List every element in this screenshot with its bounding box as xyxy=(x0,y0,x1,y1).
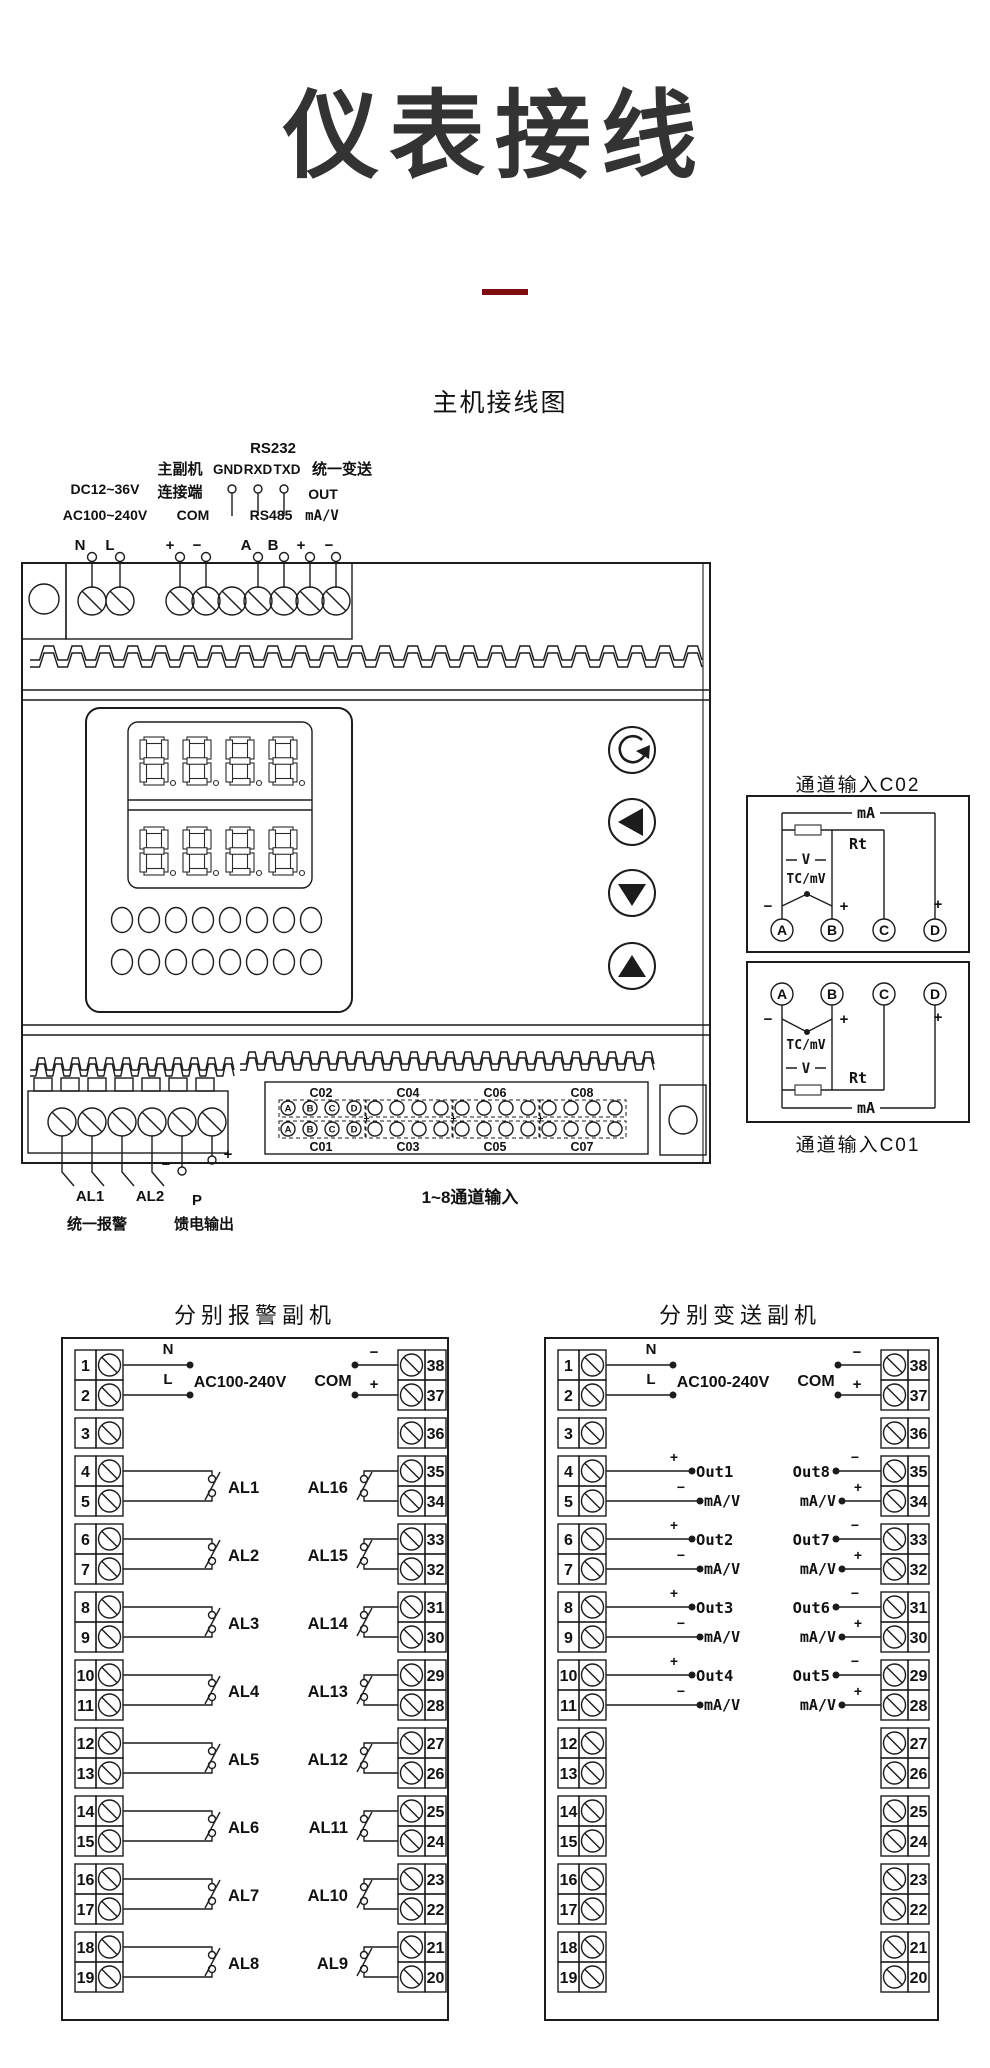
terminal-number: 13 xyxy=(560,1766,578,1783)
strip-tooth xyxy=(34,1078,52,1091)
channel-c01-title: 通道输入C01 xyxy=(796,1134,921,1156)
subunit-screw-terminal xyxy=(401,1626,423,1648)
terminal-number: 24 xyxy=(427,1834,445,1851)
terminal-number: 27 xyxy=(427,1736,445,1753)
relay-label: AL2 xyxy=(228,1547,259,1565)
indicator-lamp xyxy=(247,950,268,975)
rs232-label: RS232 xyxy=(250,440,296,457)
channel-pin xyxy=(542,1101,556,1115)
front-buttons xyxy=(609,727,655,989)
terminal-number: 11 xyxy=(77,1698,94,1715)
subunit-screw-terminal xyxy=(582,1694,604,1716)
decimal-point xyxy=(214,871,219,876)
subunit-screw-terminal xyxy=(582,1762,604,1784)
channel-box-pin-letter: A xyxy=(777,986,787,1002)
indicator-lamp xyxy=(301,908,322,933)
subunit-screw-terminal xyxy=(582,1664,604,1686)
output-sign: − xyxy=(851,1585,859,1601)
subunit-screw-terminal xyxy=(99,1558,121,1580)
subunit-screw-terminal xyxy=(884,1528,906,1550)
indicator-lamp xyxy=(139,950,160,975)
wire-end-node xyxy=(254,553,263,562)
channel-input-c02: 通道输入C02 mA Rt V TC/mV − + + ABCD xyxy=(747,774,969,952)
wire-dot xyxy=(187,1392,194,1399)
alarm-n-label: N xyxy=(163,1341,174,1358)
terminal-number: 25 xyxy=(427,1804,445,1821)
c02-tcmv-label: TC/mV xyxy=(786,872,825,887)
terminal-number: 38 xyxy=(910,1358,928,1375)
channel-pin xyxy=(608,1101,622,1115)
terminal-number: 4 xyxy=(81,1464,90,1481)
terminal-number: 21 xyxy=(427,1940,445,1957)
output-sign: − xyxy=(677,1615,685,1631)
subunit-screw-terminal xyxy=(582,1460,604,1482)
relay-contact: AL13 xyxy=(308,1675,398,1705)
terminal-number: 33 xyxy=(427,1532,445,1549)
terminal-number: 5 xyxy=(564,1494,573,1511)
relay-label: AL4 xyxy=(228,1683,260,1701)
plus-separator: + xyxy=(451,1114,457,1125)
wire-dot xyxy=(670,1392,677,1399)
terminal-number: 31 xyxy=(910,1600,928,1617)
relay-contact: AL16 xyxy=(308,1471,398,1501)
channel-label-top: C06 xyxy=(484,1086,507,1100)
channel-pin-letter: C xyxy=(329,1125,336,1136)
subunit-screw-terminal xyxy=(884,1830,906,1852)
subunit-screw-terminal xyxy=(99,1732,121,1754)
output-name: Out2 xyxy=(696,1531,733,1549)
terminal-number: 30 xyxy=(910,1630,928,1647)
subunit-screw-terminal xyxy=(582,1596,604,1618)
subunit-screw-terminal xyxy=(884,1898,906,1920)
subunit-screw-terminal xyxy=(401,1384,423,1406)
channel-pin-letter: B xyxy=(307,1125,314,1136)
subunit-screw-terminal xyxy=(884,1490,906,1512)
indicator-lamp xyxy=(247,908,268,933)
terminal-number: 26 xyxy=(910,1766,928,1783)
main-top-labels: RS232 主副机 GND RXD TXD 统一变送 连接端 OUT DC12~… xyxy=(63,440,373,554)
alarm-com-minus: − xyxy=(370,1344,379,1361)
transmit-ac-label: AC100-240V xyxy=(677,1374,770,1391)
wire-dot xyxy=(352,1362,359,1369)
terminal-number: 1 xyxy=(81,1358,90,1375)
al2-wire xyxy=(122,1136,134,1186)
subunit-screw-terminal xyxy=(582,1528,604,1550)
subunit-screw-terminal xyxy=(582,1936,604,1958)
channel-pin xyxy=(521,1122,535,1136)
c01-ma-label: mA xyxy=(857,1099,875,1117)
wire-dot xyxy=(352,1392,359,1399)
channel-pin xyxy=(564,1101,578,1115)
relay-label: AL14 xyxy=(308,1615,349,1633)
terminal-number: 17 xyxy=(560,1902,578,1919)
channel-box-pin-letter: C xyxy=(879,922,889,938)
terminal-number: 22 xyxy=(910,1902,928,1919)
strip-tooth xyxy=(115,1078,133,1091)
terminal-number: 30 xyxy=(427,1630,445,1647)
output-unit: mA/V xyxy=(800,1492,836,1510)
indicator-lamp xyxy=(220,908,241,933)
transmit-subunit-box xyxy=(545,1338,938,2020)
indicator-lamp xyxy=(139,908,160,933)
output-sign: + xyxy=(670,1585,678,1601)
terminal-number: 3 xyxy=(81,1426,90,1443)
plus-separator: + xyxy=(364,1114,370,1125)
terminal-number: 20 xyxy=(427,1970,445,1987)
com-label: COM xyxy=(177,507,210,523)
subunit-screw-terminal xyxy=(99,1384,121,1406)
terminal-number: 23 xyxy=(427,1872,445,1889)
relay-contact: AL12 xyxy=(308,1743,398,1773)
terminal-number: 28 xyxy=(910,1698,928,1715)
channel-pin xyxy=(586,1101,600,1115)
terminal-number: 15 xyxy=(77,1834,95,1851)
subunit-screw-terminal xyxy=(401,1732,423,1754)
strip-tooth xyxy=(196,1078,214,1091)
subunit-screw-terminal xyxy=(582,1354,604,1376)
top-screw-terminal xyxy=(106,587,134,615)
indicator-lamp xyxy=(220,950,241,975)
output-name: Out4 xyxy=(696,1667,733,1685)
subunit-screw-terminal xyxy=(582,1868,604,1890)
seven-segment-digit xyxy=(269,827,305,876)
subunit-screw-terminal xyxy=(884,1354,906,1376)
relay-contact: AL10 xyxy=(308,1879,398,1909)
p-plus-label: + xyxy=(224,1146,233,1163)
channel-box-pin-letter: A xyxy=(777,922,787,938)
master-slave-label-1: 主副机 xyxy=(157,460,202,478)
c02-v-label: V xyxy=(802,852,811,868)
channel-pin-letter: D xyxy=(351,1125,358,1136)
output-sign: + xyxy=(670,1653,678,1669)
subunit-screw-terminal xyxy=(99,1830,121,1852)
channel-pin xyxy=(390,1122,404,1136)
subunit-screw-terminal xyxy=(401,1664,423,1686)
subunit-screw-terminal xyxy=(401,1528,423,1550)
channel-pin xyxy=(390,1101,404,1115)
channel-box-pin-letter: C xyxy=(879,986,889,1002)
wire-end-node xyxy=(306,553,315,562)
channel-pin xyxy=(368,1101,382,1115)
output-unit: mA/V xyxy=(800,1628,836,1646)
terminal-number: 38 xyxy=(427,1358,445,1375)
c02-resistor xyxy=(795,825,821,835)
top-terminal-screws xyxy=(78,485,350,615)
relay-label: AL1 xyxy=(228,1479,259,1497)
subunit-screw-terminal xyxy=(99,1664,121,1686)
indicator-lamps xyxy=(112,908,322,975)
relay-label: AL9 xyxy=(317,1955,348,1973)
terminal-number: 13 xyxy=(77,1766,95,1783)
term-out-plus-label: + xyxy=(297,537,306,554)
subunit-screw-terminal xyxy=(884,1800,906,1822)
indicator-lamp xyxy=(274,908,295,933)
terminal-number: 16 xyxy=(560,1872,578,1889)
indicator-lamp xyxy=(193,908,214,933)
subunit-screw-terminal xyxy=(401,1966,423,1988)
indicator-lamp xyxy=(166,950,187,975)
terminal-number: 14 xyxy=(560,1804,578,1821)
channel-pin-letter: B xyxy=(307,1104,314,1115)
gnd-label: GND xyxy=(213,462,243,477)
main-bottom-labels: AL1 AL2 P − + 统一报警 馈电输出 1~8通道输入 xyxy=(62,1136,518,1233)
top-screw-terminal xyxy=(322,587,350,615)
subunit-screw-terminal xyxy=(99,1528,121,1550)
seven-segment-digit xyxy=(226,827,262,876)
master-slave-label-2: 连接端 xyxy=(157,483,202,501)
analog-output: +Out2−mA/V−Out7+mA/V xyxy=(606,1517,881,1578)
subunit-screw-terminal xyxy=(884,1460,906,1482)
subunit-screw-terminal xyxy=(99,1596,121,1618)
subunit-screw-terminal xyxy=(582,1384,604,1406)
subunit-screw-terminal xyxy=(401,1762,423,1784)
channel-label-bottom: C03 xyxy=(397,1140,420,1154)
terminal-number: 20 xyxy=(910,1970,928,1987)
strip-tooth xyxy=(142,1078,160,1091)
subunit-screw-terminal xyxy=(99,1460,121,1482)
channel-range-label: 1~8通道输入 xyxy=(422,1187,519,1207)
subunit-screw-terminal xyxy=(582,1800,604,1822)
relay-label: AL11 xyxy=(309,1819,348,1837)
terminal-number: 18 xyxy=(77,1940,95,1957)
output-name: Out6 xyxy=(793,1599,830,1617)
terminal-number: 1 xyxy=(564,1358,573,1375)
main-unit-body: C02C01AABBCCDDC04C03C06C05C08C07+++ xyxy=(22,485,710,1163)
rs232-stub-node xyxy=(280,485,288,493)
relay-contact: AL2 xyxy=(123,1539,259,1569)
p-minus-label: − xyxy=(162,1156,171,1173)
subunit-screw-terminal xyxy=(99,1354,121,1376)
terminal-number: 24 xyxy=(910,1834,928,1851)
rs485-label: RS485 xyxy=(250,507,293,523)
wire-end-node xyxy=(88,553,97,562)
subunit-screw-terminal xyxy=(401,1800,423,1822)
channel-pin xyxy=(477,1122,491,1136)
c01-minus-label: − xyxy=(764,1011,773,1028)
output-unit: mA/V xyxy=(704,1560,740,1578)
c02-pin-circles: ABCD xyxy=(771,919,946,941)
terminal-number: 19 xyxy=(560,1970,578,1987)
wire-end-node xyxy=(280,553,289,562)
channel-box-pin-letter: D xyxy=(930,986,940,1002)
wire-end-node xyxy=(332,553,341,562)
terminal-number: 32 xyxy=(910,1562,928,1579)
output-sign: − xyxy=(677,1479,685,1495)
output-name: Out1 xyxy=(696,1463,733,1481)
relay-label: AL6 xyxy=(228,1819,259,1837)
terminal-number: 23 xyxy=(910,1872,928,1889)
channel-pin-letter: A xyxy=(285,1104,292,1115)
alarm-subunit-title: 分别报警副机 xyxy=(174,1303,336,1328)
channel-pin xyxy=(542,1122,556,1136)
heatsink-zigzag-top xyxy=(30,646,702,667)
top-screw-terminal xyxy=(244,587,272,615)
c02-minus-label: − xyxy=(764,898,773,915)
output-unit: mA/V xyxy=(800,1560,836,1578)
dc-range-label: DC12~36V xyxy=(71,481,141,497)
channel-box-pin-letter: D xyxy=(930,922,940,938)
c01-pin-circles: ABCD xyxy=(771,983,946,1005)
top-screw-terminal xyxy=(192,587,220,615)
terminal-number: 14 xyxy=(77,1804,95,1821)
channel-pin-letter: D xyxy=(351,1104,358,1115)
alarm-com-label: COM xyxy=(314,1373,351,1390)
al1-label: AL1 xyxy=(76,1188,104,1205)
channel-pin xyxy=(608,1122,622,1136)
p-minus-node xyxy=(178,1167,186,1175)
alarm-subunit-diagram: 分别报警副机 123456789101112131415161718193837… xyxy=(62,1303,448,2020)
subunit-screw-terminal xyxy=(401,1898,423,1920)
terminal-number: 29 xyxy=(427,1668,445,1685)
subunit-screw-terminal xyxy=(884,1422,906,1444)
output-unit: mA/V xyxy=(800,1696,836,1714)
terminal-number: 28 xyxy=(427,1698,445,1715)
terminal-number: 36 xyxy=(427,1426,445,1443)
al1-wire xyxy=(92,1136,104,1186)
output-unit: mA/V xyxy=(704,1492,740,1510)
subunit-screw-terminal xyxy=(884,1596,906,1618)
wire-end-node xyxy=(176,553,185,562)
channel-pin xyxy=(455,1101,469,1115)
channel-label-top: C08 xyxy=(571,1086,594,1100)
output-name: Out8 xyxy=(793,1463,830,1481)
terminal-number: 7 xyxy=(81,1562,90,1579)
wire-end-node xyxy=(202,553,211,562)
c01-resistor xyxy=(795,1085,821,1095)
channel-pin xyxy=(564,1122,578,1136)
wire-dot xyxy=(670,1362,677,1369)
output-name: Out3 xyxy=(696,1599,733,1617)
subunit-screw-terminal xyxy=(884,1694,906,1716)
plus-separator: + xyxy=(538,1114,544,1125)
c01-plus-label: + xyxy=(840,1011,849,1028)
output-unit: mA/V xyxy=(704,1628,740,1646)
analog-output: +Out1−mA/V−Out8+mA/V xyxy=(606,1449,881,1510)
channel-label-top: C04 xyxy=(397,1086,420,1100)
ac-range-label: AC100~240V xyxy=(63,507,148,523)
c02-plus-label: + xyxy=(840,898,849,915)
terminal-number: 7 xyxy=(564,1562,573,1579)
channel-pin xyxy=(521,1101,535,1115)
relay-contact: AL8 xyxy=(123,1947,259,1977)
relay-contact: AL9 xyxy=(317,1947,398,1977)
subunit-screw-terminal xyxy=(401,1558,423,1580)
indicator-lamp xyxy=(112,908,133,933)
bottom-screw-terminal xyxy=(138,1108,166,1136)
decimal-point xyxy=(300,871,305,876)
terminal-number: 27 xyxy=(910,1736,928,1753)
channel-label-top: C02 xyxy=(310,1086,333,1100)
alarm-power-wires xyxy=(123,1365,190,1395)
subunit-screw-terminal xyxy=(884,1936,906,1958)
terminal-number: 12 xyxy=(560,1736,578,1753)
relay-label: AL16 xyxy=(308,1479,348,1497)
channel-input-c01: mA Rt V TC/mV − + + ABCD 通道输入C01 xyxy=(747,962,969,1156)
terminal-number: 5 xyxy=(81,1494,90,1511)
output-name: Out5 xyxy=(793,1667,830,1685)
up-arrow-icon xyxy=(618,955,646,977)
mount-hole-top xyxy=(29,584,59,614)
decimal-point xyxy=(257,781,262,786)
transmit-com-plus: + xyxy=(853,1376,862,1393)
alarm-l-label: L xyxy=(163,1371,172,1388)
terminal-number: 4 xyxy=(564,1464,573,1481)
subunit-screw-terminal xyxy=(401,1936,423,1958)
bottom-screw-terminal xyxy=(168,1108,196,1136)
channel-pin xyxy=(412,1122,426,1136)
wire-end-node xyxy=(116,553,125,562)
terminal-number: 35 xyxy=(910,1464,928,1481)
channel-pin xyxy=(412,1101,426,1115)
heatsink-zigzag-bottom-right xyxy=(240,1052,654,1070)
subunit-screw-terminal xyxy=(99,1898,121,1920)
mount-ear-bottom xyxy=(660,1085,706,1155)
subunit-screw-terminal xyxy=(582,1558,604,1580)
subunit-screw-terminal xyxy=(401,1830,423,1852)
terminal-number: 15 xyxy=(560,1834,578,1851)
subunit-screw-terminal xyxy=(884,1762,906,1784)
heatsink-zigzag-bottom-left xyxy=(30,1058,234,1076)
subunit-screw-terminal xyxy=(884,1732,906,1754)
transmit-power-wires xyxy=(606,1365,673,1395)
relay-contact: AL7 xyxy=(123,1879,259,1909)
terminal-number: 8 xyxy=(564,1600,573,1617)
indicator-lamp xyxy=(193,950,214,975)
c01-tcmv-label: TC/mV xyxy=(786,1038,825,1053)
rs232-stub-node xyxy=(228,485,236,493)
subunit-screw-terminal xyxy=(582,1626,604,1648)
terminal-number: 34 xyxy=(910,1494,928,1511)
subunit-screw-terminal xyxy=(884,1664,906,1686)
output-sign: + xyxy=(670,1449,678,1465)
channel-pin xyxy=(477,1101,491,1115)
decimal-point xyxy=(171,871,176,876)
seven-segment-digit xyxy=(183,827,219,876)
c01-dplus-label: + xyxy=(934,1009,943,1026)
channel-box-pin-letter: B xyxy=(827,986,837,1002)
terminal-number: 10 xyxy=(560,1668,578,1685)
seven-segment-digit xyxy=(269,737,305,786)
channel-label-bottom: C05 xyxy=(484,1140,507,1154)
output-sign: + xyxy=(670,1517,678,1533)
seven-segment-displays xyxy=(140,737,305,876)
rs232-stub-node xyxy=(254,485,262,493)
terminal-number: 37 xyxy=(910,1388,928,1405)
terminal-number: 18 xyxy=(560,1940,578,1957)
bottom-screw-terminal xyxy=(108,1108,136,1136)
terminal-number: 32 xyxy=(427,1562,445,1579)
subunit-screw-terminal xyxy=(99,1936,121,1958)
term-l-label: L xyxy=(105,537,114,554)
indicator-lamp xyxy=(166,908,187,933)
unified-alarm-label: 统一报警 xyxy=(67,1215,127,1233)
subunit-screw-terminal xyxy=(582,1898,604,1920)
transmit-subunit-diagram: 分别变送副机 123456789101112131415161718193837… xyxy=(545,1303,938,2020)
subunit-screw-terminal xyxy=(884,1966,906,1988)
c02-junction-dot xyxy=(804,891,810,897)
relay-contact: AL14 xyxy=(308,1607,398,1637)
subunit-screw-terminal xyxy=(401,1868,423,1890)
wire-dot xyxy=(835,1362,842,1369)
relay-contact: AL11 xyxy=(309,1811,398,1841)
term-a-label: A xyxy=(241,537,252,554)
terminal-number: 36 xyxy=(910,1426,928,1443)
wiring-diagram-canvas: 主机接线图 RS232 主副机 GND RXD TXD 统一变送 连接端 OUT… xyxy=(0,0,990,2068)
transmit-n-label: N xyxy=(646,1341,657,1358)
terminal-number: 26 xyxy=(427,1766,445,1783)
channel-pin xyxy=(586,1122,600,1136)
analog-output: +Out3−mA/V−Out6+mA/V xyxy=(606,1585,881,1646)
